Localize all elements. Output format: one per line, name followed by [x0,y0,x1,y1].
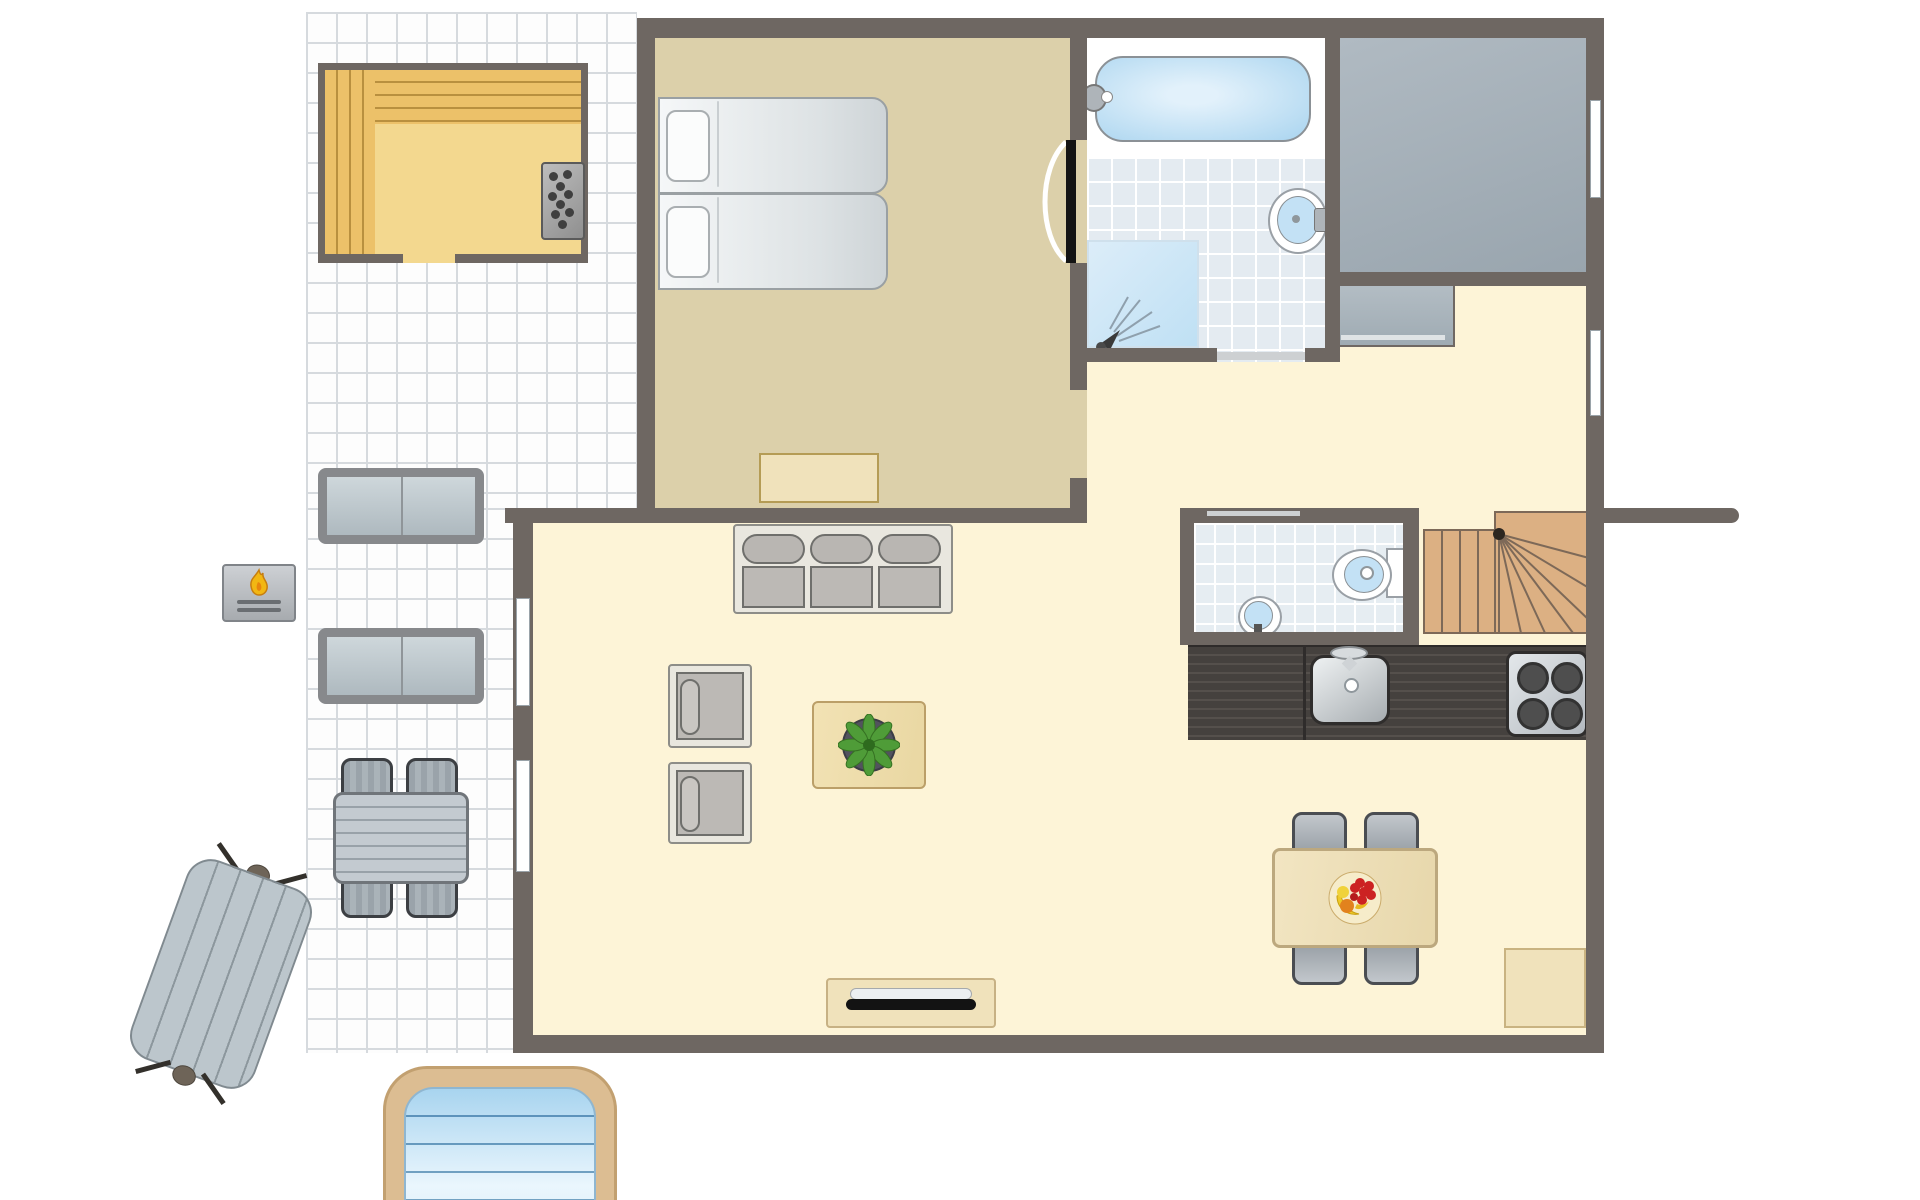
sun-lounger [123,852,320,1096]
armchair-back-pillow [680,776,700,832]
daybed [318,628,484,704]
wall-toilet-south [1180,632,1419,645]
dining-chair [1292,943,1347,985]
wall-bathroom-east [1325,38,1340,362]
hot-tub [383,1066,617,1200]
burner [1517,698,1549,730]
wall-bedroom-west [637,18,655,523]
sauna-bench-left [325,70,375,256]
sofa-seat [810,566,873,608]
wall-bedroom-east-mid [1070,263,1087,390]
bed-pillow-top [666,110,710,182]
bathroom-sink-drain [1292,215,1300,223]
duvet-fold-top [717,101,719,187]
storage-room-floor [1340,38,1586,272]
lounger-body [123,852,320,1096]
bedroom-ensuite-door-swing [1022,138,1070,265]
kitchen-counter-seam [1303,645,1306,740]
sofa-back-pillow [742,534,805,564]
patio-chair [341,878,393,918]
wall-bathroom-south-left [1087,348,1217,362]
shower-spray-icon [1092,292,1178,354]
hallway-floor [1087,362,1586,515]
grill-vent [237,608,281,612]
burner [1551,662,1583,694]
fruit-bowl-icon [1327,870,1383,926]
bed-pillow-bottom [666,206,710,278]
wall-exterior-stub [1604,508,1739,523]
armchair [668,664,752,748]
wall-bedroom-east-lower [1070,478,1087,515]
burner [1517,662,1549,694]
wall-toilet-east [1403,508,1419,645]
hot-tub-cover [404,1087,596,1200]
kitchen-stove [1506,651,1588,737]
toilet-drain [1360,566,1374,580]
living-terrace-window [516,760,530,872]
wall-bathroom-south-right [1305,348,1325,362]
hallway-window [1590,330,1601,416]
bedroom-dresser [759,453,879,503]
hall-closet [1333,283,1455,347]
sofa-back-pillow [878,534,941,564]
daybed-divider [401,477,403,535]
armchair [668,762,752,844]
sauna-wall-bottom-left [318,254,403,263]
patio-table [333,792,469,884]
sofa-seat [742,566,805,608]
kitchen-sink-drain [1344,678,1359,693]
closet-handle [1341,335,1445,340]
sauna-stones [549,172,558,181]
burner [1551,698,1583,730]
wall-top [637,18,1604,38]
armchair-back-pillow [680,679,700,735]
dining-chair [1364,943,1419,985]
toilet-sliding-door [1207,511,1300,516]
bathtub-faucet-knob [1101,91,1113,103]
duvet-fold-bottom [717,197,719,283]
wall-toilet-west [1180,508,1194,645]
grill-vent [237,600,281,604]
sauna-heater [541,162,585,240]
patio-chair [406,878,458,918]
flat-tv [846,999,976,1010]
wall-bedroom-south [505,508,1087,523]
daybed-divider [401,637,403,695]
bedroom-ensuite-door-leaf [1066,140,1076,263]
sofa [733,524,953,614]
wall-bottom [513,1035,1604,1053]
plant-icon [838,714,900,776]
winder-staircase [1423,510,1590,635]
bathroom-sliding-door [1217,352,1305,360]
double-bed [658,97,888,290]
bathtub [1095,56,1311,142]
storage-room-window [1590,100,1601,198]
sofa-seat [878,566,941,608]
wall-storage-south [1325,272,1586,286]
living-terrace-door [516,598,530,706]
floor-plan-canvas [0,0,1920,1200]
daybed [318,468,484,544]
flame-icon [246,568,272,598]
barbecue-grill [222,564,296,622]
sofa-back-pillow [810,534,873,564]
wall-bedroom-east-upper [1070,18,1087,140]
sauna-wall-bottom-right [455,254,588,263]
corner-cabinet [1504,948,1586,1028]
